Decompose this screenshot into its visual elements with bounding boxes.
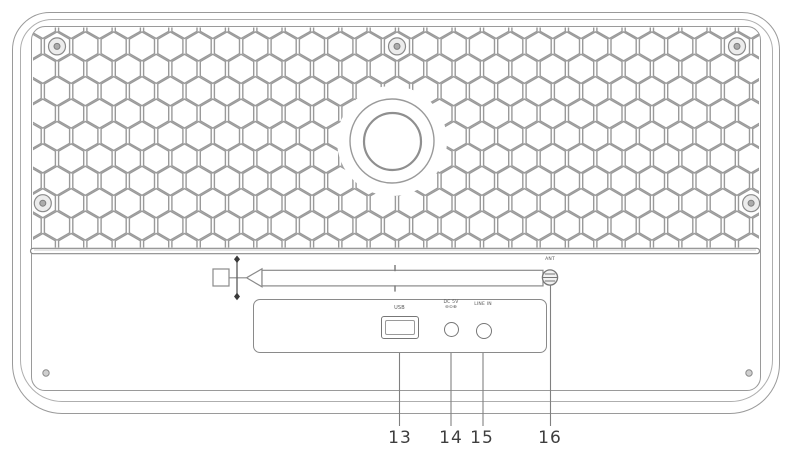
antenna-mount-screw xyxy=(542,270,557,285)
case-screws xyxy=(43,370,752,376)
usb-port-tongue xyxy=(385,320,415,335)
grille-screw xyxy=(49,38,66,55)
grille-divider-bar xyxy=(31,248,760,253)
line-in-label: LINE IN xyxy=(469,302,497,307)
line-in-jack xyxy=(476,323,492,339)
antenna-tip-cap xyxy=(213,269,229,286)
antenna-label: ANT xyxy=(536,257,564,263)
rear-panel-diagram: USB DC 5V ⊖⊙⊕ LINE IN ANT 13 14 15 16 xyxy=(0,0,790,451)
callout-number-15: 15 xyxy=(465,428,499,448)
fm-antenna xyxy=(213,256,543,301)
grille-screw xyxy=(743,195,760,212)
usb-port xyxy=(381,316,419,339)
antenna-hinge-pin-top xyxy=(234,256,240,264)
line-art-layer xyxy=(0,0,790,451)
dc-in-label: DC 5V ⊖⊙⊕ xyxy=(437,300,465,310)
callout-number-14: 14 xyxy=(434,428,468,448)
antenna-joint-cone xyxy=(247,269,263,287)
bass-port xyxy=(337,86,447,196)
antenna-hinge-pin-bottom xyxy=(234,293,240,300)
antenna-rod xyxy=(262,270,543,286)
usb-port-label: USB xyxy=(386,306,413,312)
dc-in-polarity-icon: ⊖⊙⊕ xyxy=(437,305,465,310)
callout-number-16: 16 xyxy=(533,428,567,448)
callout-number-13: 13 xyxy=(383,428,417,448)
grille-screw xyxy=(34,195,51,212)
grille-screw xyxy=(729,38,746,55)
grille-screw xyxy=(389,38,406,55)
dc-in-jack xyxy=(444,322,459,337)
